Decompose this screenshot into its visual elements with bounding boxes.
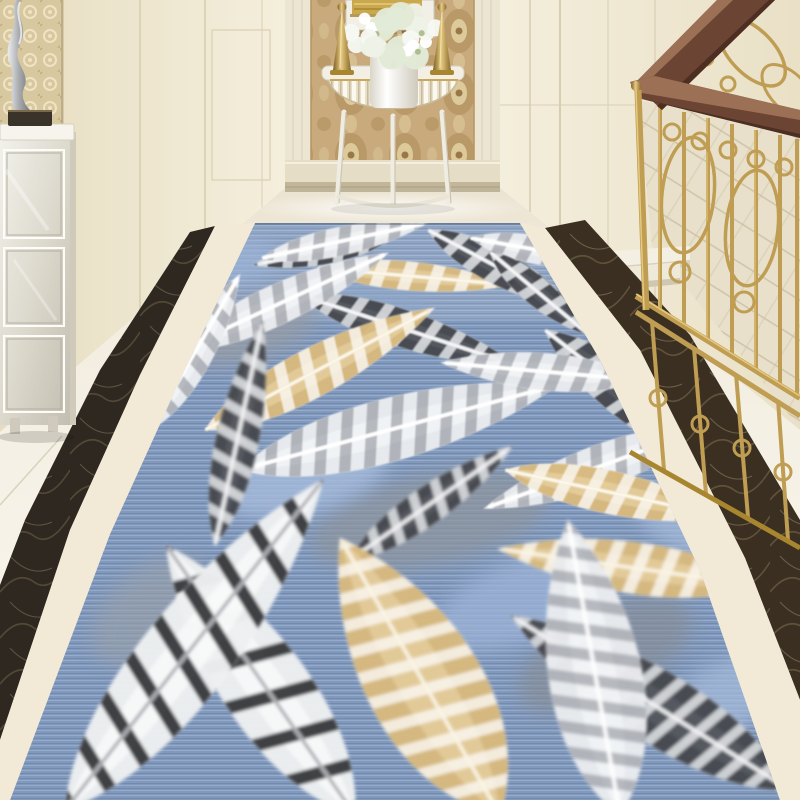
newel-knob xyxy=(631,81,641,91)
cabinet-top xyxy=(0,124,74,140)
hallway-scene xyxy=(0,0,800,800)
hallway-rug-photo xyxy=(0,0,800,800)
